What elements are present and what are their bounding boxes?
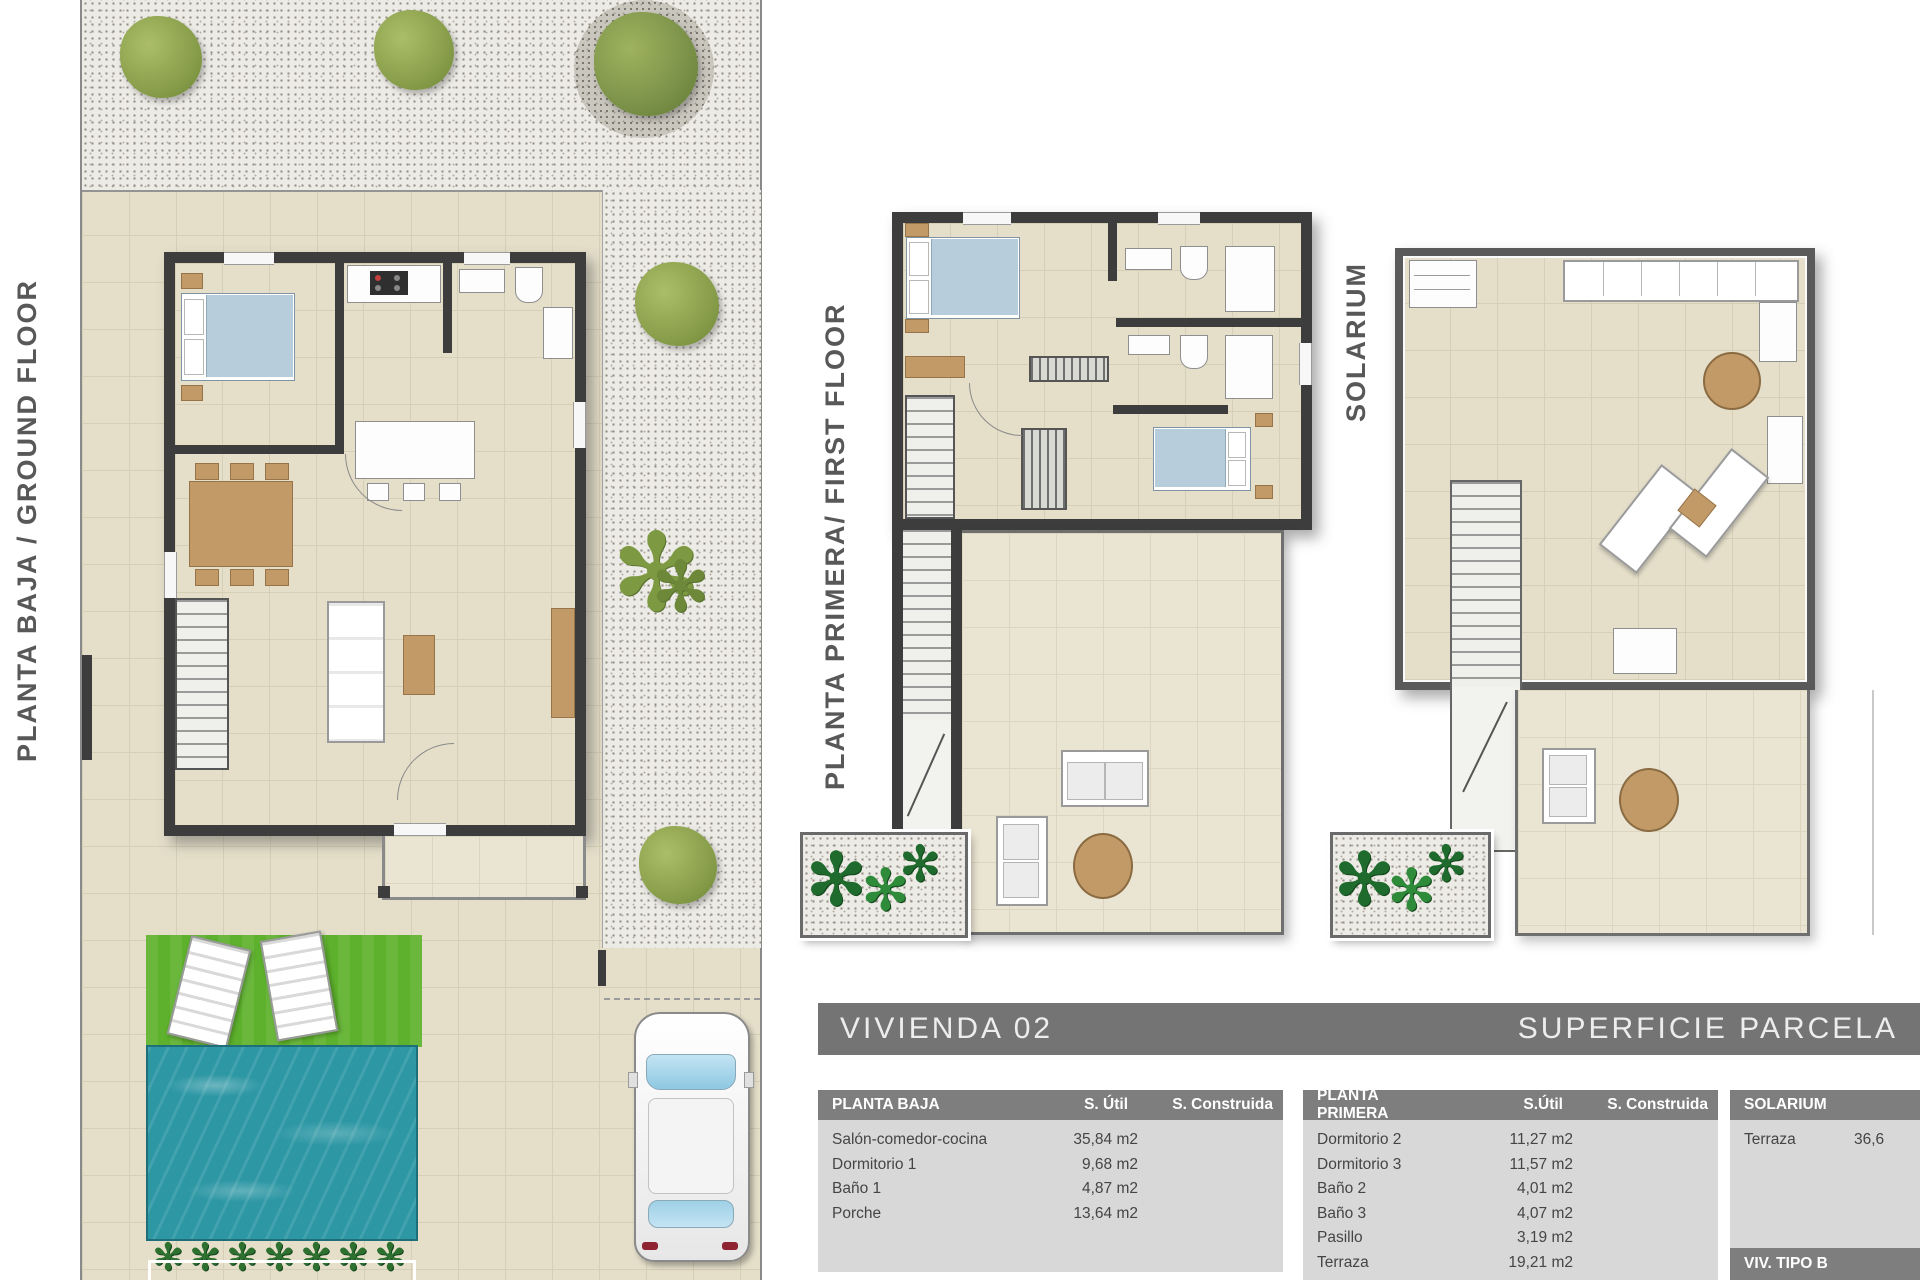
interior-wall: [443, 263, 452, 353]
bathroom-sink: [1128, 335, 1170, 355]
plant-icon: ✻: [1333, 843, 1395, 917]
unit-title: VIVIENDA 02: [840, 1012, 1053, 1046]
room-name: Baño 2: [1317, 1177, 1453, 1202]
ground-floor-label: PLANTA BAJA / GROUND FLOOR: [12, 250, 43, 762]
terrace-armchair: [996, 816, 1048, 906]
table-title: SOLARIUM: [1744, 1096, 1920, 1114]
nightstand: [1255, 485, 1273, 499]
interior-wall: [1116, 318, 1301, 327]
table-row: Dormitorio 1 9,68 m2: [818, 1153, 1283, 1178]
sun-lounger: [260, 930, 339, 1041]
room-area-constr: [1138, 1128, 1283, 1153]
armchair-cushion: [1549, 755, 1587, 785]
room-name: Baño 3: [1317, 1202, 1453, 1227]
taillight: [722, 1242, 738, 1250]
cushion-divider: [1755, 262, 1756, 296]
sun-lounger: [167, 935, 252, 1049]
bench: [905, 356, 965, 378]
room-name: Dormitorio 2: [1317, 1128, 1453, 1153]
door-arc: [397, 743, 454, 800]
stair-arrow: [1462, 702, 1508, 793]
table-body: Dormitorio 2 11,27 m2 Dormitorio 3 11,57…: [1303, 1120, 1718, 1275]
col-util: S. Útil: [1008, 1096, 1128, 1114]
first-floor-label: PLANTA PRIMERA/ FIRST FLOOR: [820, 255, 851, 790]
window-gap: [224, 252, 274, 265]
table-row: Salón-comedor-cocina 35,84 m2: [818, 1128, 1283, 1153]
taillight: [642, 1242, 658, 1250]
stair-treads: [903, 530, 951, 720]
title-bar: VIVIENDA 02 SUPERFICIE PARCELA: [818, 1003, 1920, 1055]
window-gap: [1299, 343, 1312, 385]
armchair-cushion: [1003, 824, 1039, 860]
duvet: [931, 239, 1018, 315]
tree: [374, 10, 454, 90]
room-name: Baño 1: [832, 1177, 1018, 1202]
sofa-cushion: [1105, 762, 1143, 800]
first-floor-main-block: [892, 212, 1312, 530]
shelf-line: [1414, 275, 1470, 276]
stair-arrow: [907, 733, 945, 816]
sectional-sofa: [1563, 260, 1799, 302]
col-construida: S. Construida: [1128, 1096, 1283, 1114]
pillow: [909, 280, 929, 314]
nightstand: [181, 273, 203, 289]
burner: [375, 275, 381, 281]
stair-shaft: [892, 530, 962, 860]
plant-icon: ✻: [899, 839, 941, 889]
room-area-constr: [1138, 1153, 1283, 1178]
shower: [1225, 246, 1275, 312]
cushion-divider: [1603, 262, 1604, 296]
window-gap: [164, 552, 177, 598]
table-row: Dormitorio 2 11,27 m2: [1303, 1128, 1718, 1153]
room-name: Dormitorio 3: [1317, 1153, 1453, 1178]
room-area: 35,84 m2: [1018, 1128, 1138, 1153]
storage-closet: [1409, 260, 1477, 308]
table-row: Porche 13,64 m2: [818, 1202, 1283, 1227]
stool: [439, 483, 461, 501]
lawn: [146, 935, 422, 1047]
window-gap: [573, 402, 586, 448]
col-construida: S. Construida: [1563, 1096, 1718, 1114]
table-row: Baño 1 4,87 m2: [818, 1177, 1283, 1202]
door-arc: [345, 454, 402, 511]
planta-baja-table-header: PLANTA BAJA S. Útil S. Construida: [818, 1090, 1283, 1120]
room-area: 11,57 m2: [1453, 1153, 1573, 1178]
burner: [375, 285, 381, 291]
solarium-stair-shaft: [1450, 480, 1522, 852]
round-table: [1703, 352, 1761, 410]
nightstand: [905, 319, 929, 333]
table-body: Salón-comedor-cocina 35,84 m2 Dormitorio…: [818, 1120, 1283, 1226]
ground-floor-house: [164, 252, 586, 836]
sofa: [327, 601, 385, 743]
coffee-table: [403, 635, 435, 695]
room-area: 3,19 m2: [1453, 1226, 1573, 1251]
window-gap: [1158, 212, 1200, 225]
sofa-cushion: [1067, 762, 1105, 800]
planta-primera-table-header: PLANTA PRIMERA S.Útil S. Construida: [1303, 1090, 1718, 1120]
solarium-table: SOLARIUM Terraza 36,6 VIV. TIPO B: [1730, 1090, 1920, 1280]
toilet: [1180, 335, 1208, 369]
chair: [195, 569, 219, 586]
adjacent-plan-edge: [1872, 690, 1874, 935]
pillow: [184, 339, 204, 375]
pillow: [1228, 432, 1246, 458]
room-area-constr: [1573, 1177, 1718, 1202]
pillow: [184, 299, 204, 335]
burner: [394, 275, 400, 281]
shower: [1225, 335, 1273, 399]
driveway-wall-stub: [598, 950, 606, 986]
terrace-armchair: [1542, 748, 1596, 824]
room-name: Terraza: [1317, 1251, 1453, 1276]
double-bed: [181, 293, 295, 381]
plant-icon: ✻: [805, 843, 867, 917]
swimming-pool: [146, 1045, 418, 1241]
table-body: Terraza 36,6: [1730, 1120, 1920, 1153]
palm-tree-icon: ✻: [651, 552, 710, 622]
col-util: S.Útil: [1443, 1096, 1563, 1114]
tree: [635, 262, 719, 346]
dining-table: [189, 481, 293, 567]
table-title: PLANTA PRIMERA: [1317, 1087, 1443, 1123]
driveway-dashed-line: [604, 998, 760, 1000]
pillow: [1228, 460, 1246, 486]
round-table: [1073, 833, 1133, 899]
room-area: 4,01 m2: [1453, 1177, 1573, 1202]
porch: [382, 836, 586, 900]
table-title: PLANTA BAJA: [832, 1096, 1008, 1114]
viv-tipo-b-bar: VIV. TIPO B: [1730, 1248, 1920, 1280]
shower: [543, 307, 573, 359]
bathroom-sink: [1125, 248, 1172, 270]
nightstand: [1255, 413, 1273, 427]
toilet: [515, 267, 543, 303]
room-area: 11,27 m2: [1453, 1128, 1573, 1153]
room-area-constr: [1573, 1128, 1718, 1153]
room-area: 19,21 m2: [1453, 1251, 1573, 1276]
duvet: [206, 295, 293, 377]
chair: [230, 463, 254, 480]
table-row: Pasillo 3,19 m2: [1303, 1226, 1718, 1251]
room-area: 36,6: [1854, 1128, 1884, 1153]
first-floor-terrace: [962, 530, 1284, 935]
side-mirror: [628, 1072, 638, 1088]
armchair-cushion: [1003, 862, 1039, 898]
parcel-title: SUPERFICIE PARCELA: [1518, 1012, 1898, 1046]
stair-treads: [1452, 482, 1520, 687]
room-name: Salón-comedor-cocina: [832, 1128, 1018, 1153]
side-garden-gravel: ✻ ✻: [602, 190, 761, 948]
cushion-divider: [1641, 262, 1642, 296]
shelf-line: [1414, 289, 1470, 290]
table-row: Terraza 19,21 m2: [1303, 1251, 1718, 1276]
toilet: [1180, 246, 1208, 280]
rear-window: [648, 1200, 734, 1228]
burner: [394, 285, 400, 291]
first-floor-plan: [892, 212, 1312, 935]
sofa-return: [1759, 302, 1797, 362]
nightstand: [905, 223, 929, 237]
double-bed: [906, 237, 1020, 319]
tv-unit: [551, 608, 575, 718]
interior-wall: [335, 263, 344, 448]
tree: [120, 16, 202, 98]
windshield: [646, 1054, 736, 1090]
solarium-table-header: SOLARIUM: [1730, 1090, 1920, 1120]
table-row: Baño 3 4,07 m2: [1303, 1202, 1718, 1227]
window-gap: [464, 252, 510, 265]
room-area: 4,07 m2: [1453, 1202, 1573, 1227]
car: [634, 1012, 750, 1262]
pillow: [909, 242, 929, 276]
table-row: Baño 2 4,01 m2: [1303, 1177, 1718, 1202]
side-unit: [1767, 416, 1803, 484]
terrace-sofa: [1061, 750, 1149, 807]
tree: [639, 826, 717, 904]
duvet: [1155, 429, 1226, 487]
cushion-divider: [1679, 262, 1680, 296]
room-area: 13,64 m2: [1018, 1202, 1138, 1227]
ground-floor-site-plan: ✻ ✻: [80, 0, 762, 1280]
plant-icon: ✻: [1425, 839, 1467, 889]
door-gap: [394, 823, 446, 836]
armchair-cushion: [1549, 787, 1587, 817]
room-area-constr: [1138, 1202, 1283, 1227]
stove: [370, 271, 408, 295]
bathroom-sink: [459, 269, 505, 293]
porch-column: [576, 886, 588, 898]
planter-edge: [148, 1260, 416, 1280]
room-name: Dormitorio 1: [832, 1153, 1018, 1178]
staircase: [175, 598, 229, 770]
planta-primera-table: PLANTA PRIMERA S.Útil S. Construida Dorm…: [1303, 1090, 1718, 1280]
nightstand: [181, 385, 203, 401]
room-area-constr: [1573, 1251, 1718, 1276]
chair: [230, 569, 254, 586]
cushion-divider: [1717, 262, 1718, 296]
bench: [1613, 628, 1677, 674]
staircase: [905, 395, 955, 519]
planter: ✻ ✻ ✻: [800, 832, 968, 938]
closet: [1021, 428, 1067, 510]
chair: [265, 463, 289, 480]
planta-baja-table: PLANTA BAJA S. Útil S. Construida Salón-…: [818, 1090, 1283, 1272]
chair: [265, 569, 289, 586]
solarium-label: SOLARIUM: [1341, 252, 1372, 422]
room-area-constr: [1573, 1153, 1718, 1178]
room-name: Pasillo: [1317, 1226, 1453, 1251]
table-row: Dormitorio 3 11,57 m2: [1303, 1153, 1718, 1178]
room-area: 4,87 m2: [1018, 1177, 1138, 1202]
garden-gate-wall: [82, 655, 92, 760]
room-name: Porche: [832, 1202, 1018, 1227]
side-mirror: [744, 1072, 754, 1088]
kitchen-counter: [347, 265, 441, 303]
planter: ✻ ✻ ✻: [1330, 832, 1491, 938]
car-roof: [648, 1098, 734, 1194]
table-row: Terraza 36,6: [1730, 1128, 1920, 1153]
stool: [403, 483, 425, 501]
room-name: Terraza: [1744, 1128, 1854, 1153]
door-arc: [969, 383, 1022, 436]
front-garden-gravel: [82, 0, 760, 192]
porch-column: [378, 886, 390, 898]
room-area-constr: [1573, 1202, 1718, 1227]
chair: [195, 463, 219, 480]
interior-wall: [175, 445, 344, 454]
interior-wall: [1113, 405, 1228, 414]
window-gap: [963, 212, 1011, 225]
interior-wall: [1108, 223, 1117, 281]
room-area: 9,68 m2: [1018, 1153, 1138, 1178]
wardrobe: [1029, 356, 1109, 382]
floor-plan-sheet: ✻ ✻: [0, 0, 1920, 1280]
room-area-constr: [1138, 1177, 1283, 1202]
double-bed: [1153, 427, 1251, 491]
room-area-constr: [1573, 1226, 1718, 1251]
round-table: [1619, 768, 1679, 832]
solarium-terrace: [1515, 690, 1810, 936]
